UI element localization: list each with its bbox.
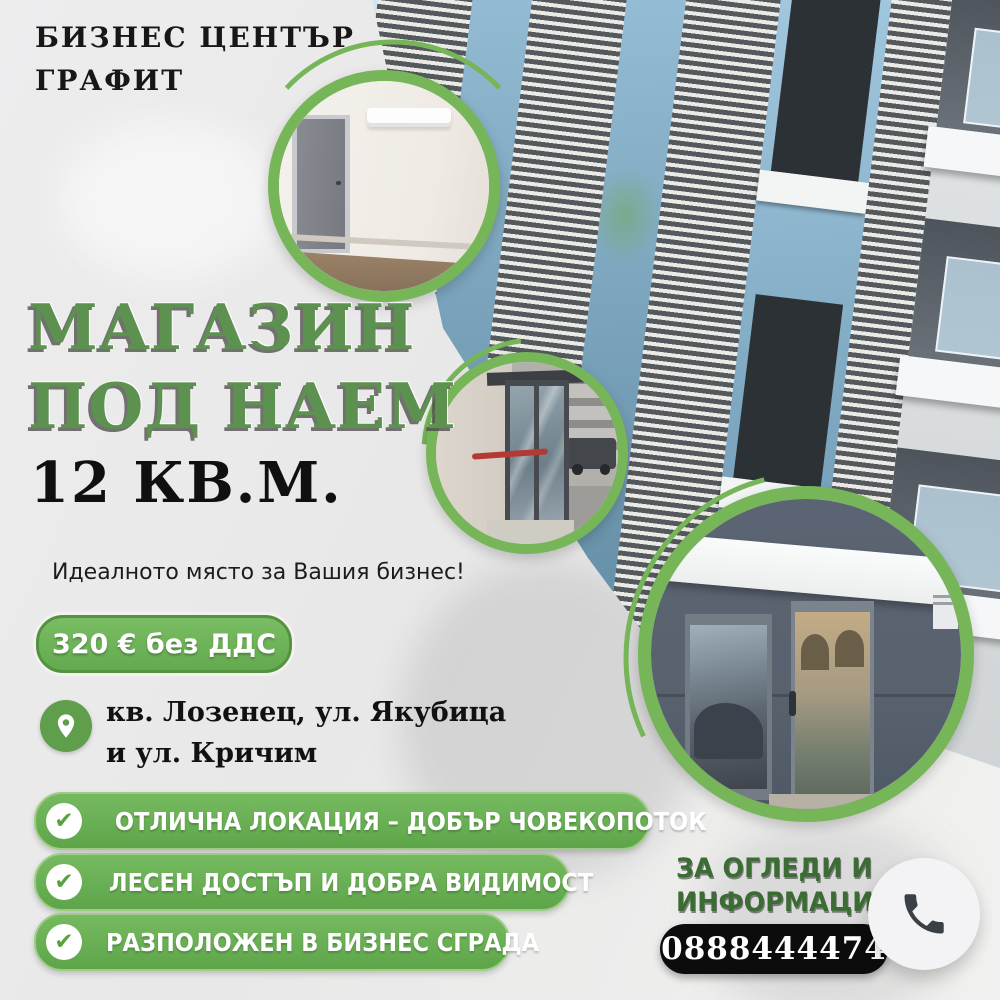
area-size: 12 КВ.М. (30, 450, 343, 516)
page-title: МАГАЗИН ПОД НАЕМ (28, 288, 457, 446)
storefront-photo (638, 486, 974, 822)
location-pin-icon (40, 700, 92, 752)
brand-line2: ГРАФИТ (35, 59, 355, 102)
price-badge-label: 320 € без ДДС (52, 629, 276, 660)
shop-door (791, 601, 875, 806)
feature-pill-access: ✔ ЛЕСЕН ДОСТЪП И ДОБРА ВИДИМОСТ (34, 853, 570, 911)
phone-icon (868, 858, 980, 970)
contact-line2: ИНФОРМАЦИЯ (676, 886, 893, 920)
flyer: БИЗНЕС ЦЕНТЪР ГРАФИТ МАГАЗИН ПОД НАЕМ 12… (0, 0, 1000, 1000)
location-line2: и ул. Кричим (106, 733, 506, 774)
truck-silhouette (567, 438, 616, 469)
small-sign (933, 595, 958, 629)
phone-number: 0888444474 (660, 924, 888, 974)
location-block: кв. Лозенец, ул. Якубица и ул. Кричим (40, 692, 506, 774)
contact-heading: ЗА ОГЛЕДИ И ИНФОРМАЦИЯ (676, 852, 893, 920)
check-icon: ✔ (46, 803, 82, 839)
price-badge: 320 € без ДДС (36, 615, 292, 673)
brand-title: БИЗНЕС ЦЕНТЪР ГРАФИТ (35, 16, 355, 102)
ac-unit (367, 108, 451, 127)
feature-label: ОТЛИЧНА ЛОКАЦИЯ – ДОБЪР ЧОВЕКОПОТОК (115, 807, 707, 836)
location-text: кв. Лозенец, ул. Якубица и ул. Кричим (106, 692, 506, 774)
interior-door (292, 115, 351, 254)
check-icon: ✔ (46, 864, 82, 900)
headline-line2: ПОД НАЕМ (28, 367, 457, 446)
check-icon: ✔ (46, 924, 82, 960)
feature-label: РАЗПОЛОЖЕН В БИЗНЕС СГРАДА (106, 928, 539, 957)
shop-window (685, 614, 772, 800)
location-line1: кв. Лозенец, ул. Якубица (106, 692, 506, 733)
brand-line1: БИЗНЕС ЦЕНТЪР (35, 16, 355, 59)
tagline: Идеалното място за Вашия бизнес! (52, 560, 465, 585)
feature-pill-building: ✔ РАЗПОЛОЖЕН В БИЗНЕС СГРАДА (34, 913, 510, 971)
contact-line1: ЗА ОГЛЕДИ И (676, 852, 893, 886)
glass-entrance-door (505, 380, 569, 537)
feature-pill-location: ✔ ОТЛИЧНА ЛОКАЦИЯ – ДОБЪР ЧОВЕКОПОТОК (34, 792, 650, 850)
feature-label: ЛЕСЕН ДОСТЪП И ДОБРА ВИДИМОСТ (109, 868, 593, 897)
interior-photo (268, 70, 500, 302)
headline-line1: МАГАЗИН (28, 288, 457, 367)
